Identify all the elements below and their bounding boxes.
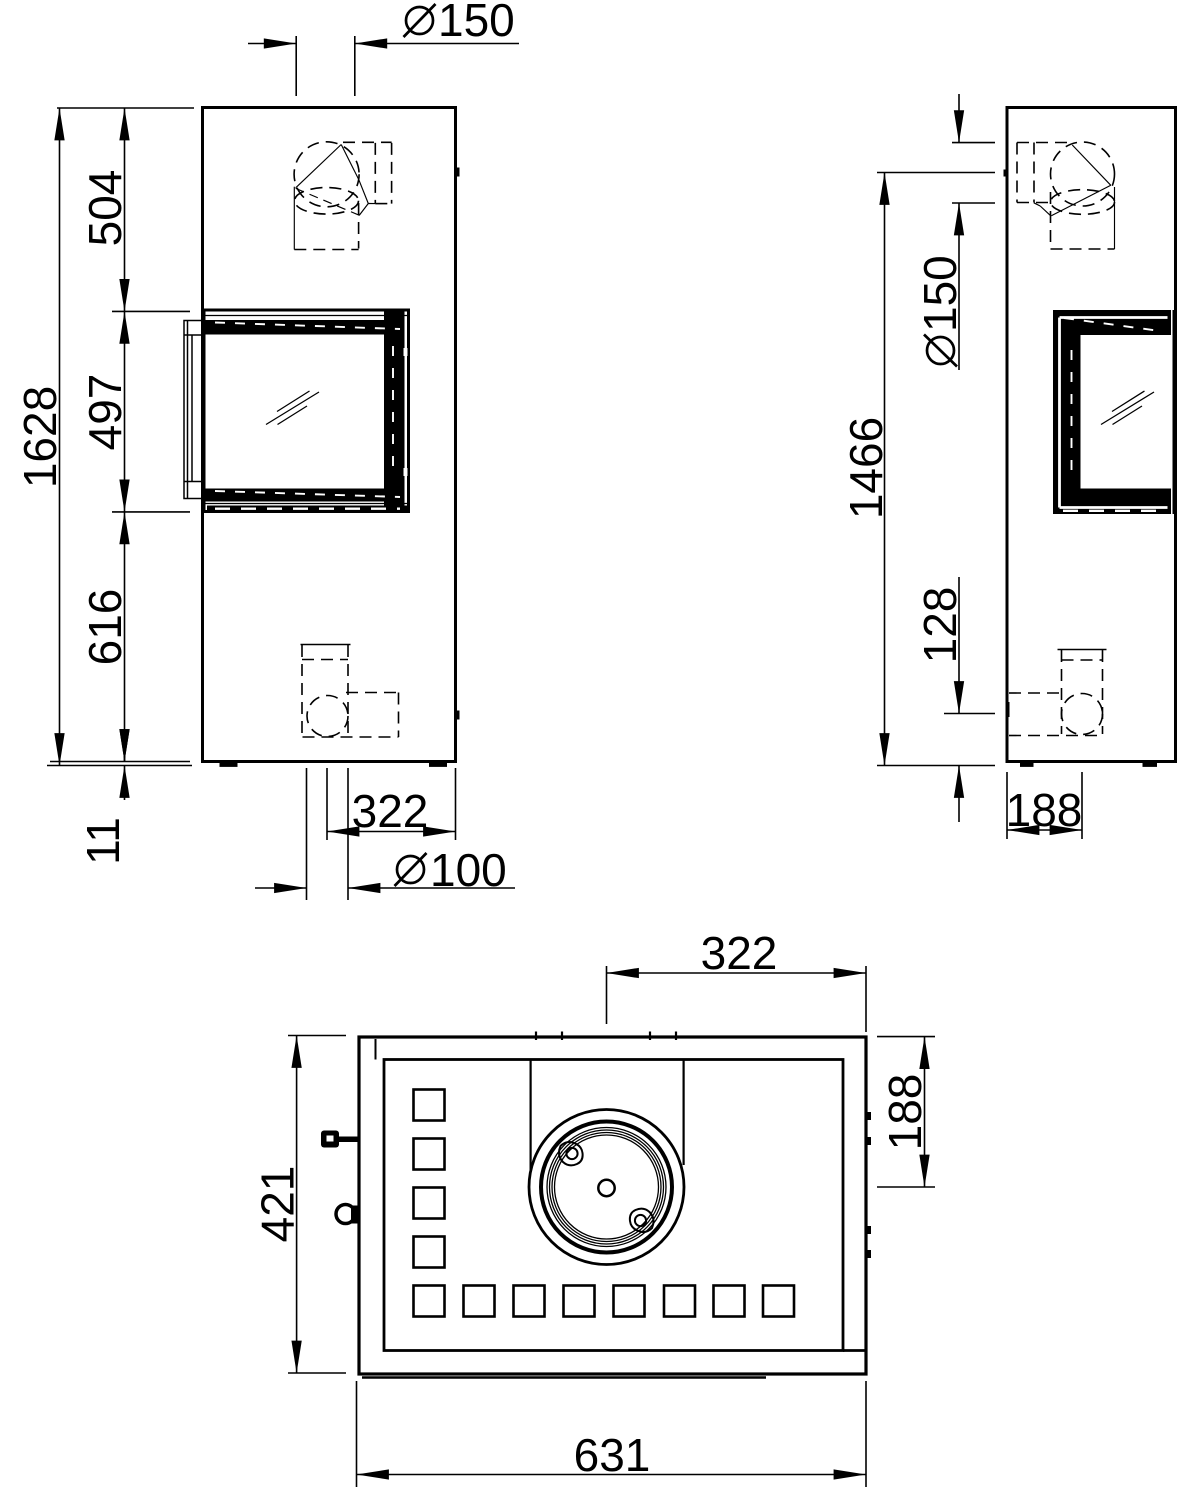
svg-text:11: 11	[77, 817, 129, 865]
svg-text:322: 322	[352, 785, 429, 837]
svg-text:631: 631	[574, 1429, 651, 1481]
svg-text:497: 497	[79, 374, 131, 451]
svg-text:421: 421	[252, 1166, 304, 1243]
svg-text:504: 504	[79, 170, 131, 247]
svg-text:1466: 1466	[840, 417, 892, 519]
svg-text:1628: 1628	[14, 386, 66, 488]
svg-text:150: 150	[438, 0, 515, 46]
svg-text:100: 100	[430, 844, 507, 896]
svg-text:150: 150	[914, 255, 966, 332]
svg-text:616: 616	[79, 589, 131, 666]
svg-text:188: 188	[1006, 784, 1083, 836]
svg-text:188: 188	[879, 1074, 931, 1151]
svg-text:128: 128	[914, 587, 966, 664]
svg-text:322: 322	[701, 927, 778, 979]
